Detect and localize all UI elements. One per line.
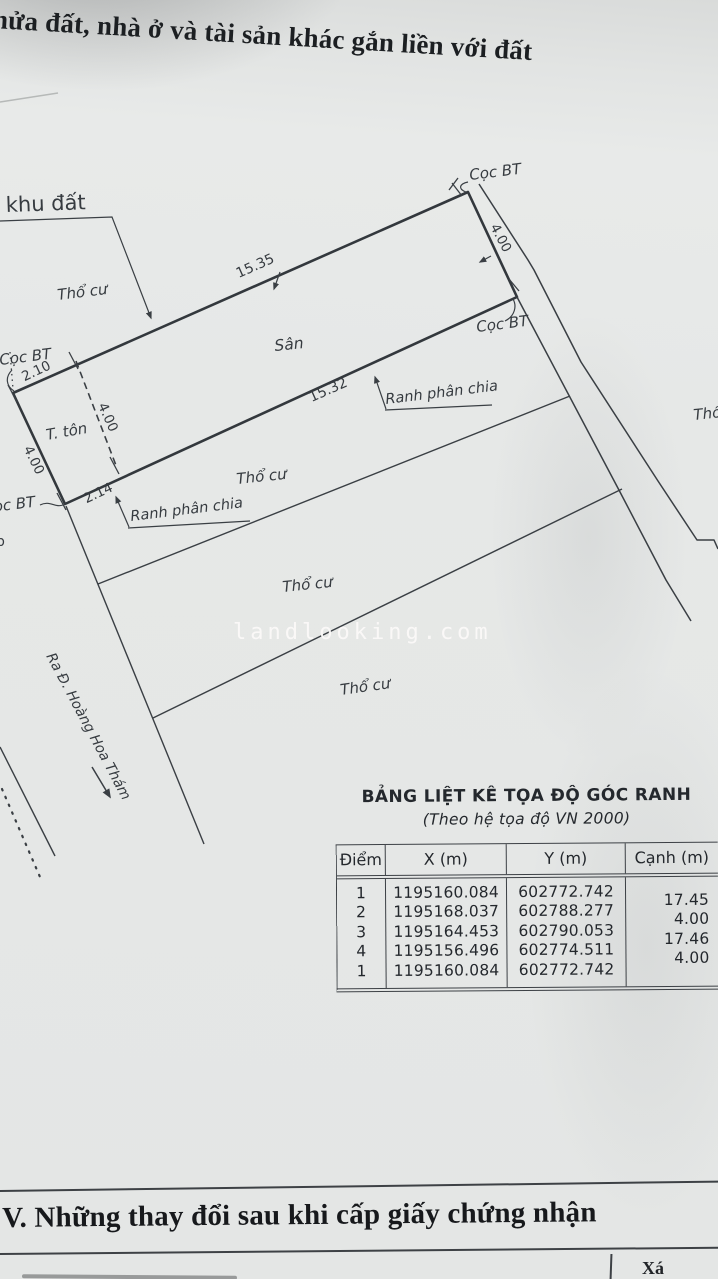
division-boundary-label-1: Ranh phân chia xyxy=(385,378,499,408)
table-header-row: Điểm X (m) Y (m) Cạnh (m) xyxy=(337,843,718,880)
residential-land-label-strip1: Thổ cư xyxy=(236,465,289,488)
footer-section-title: V. Những thay đổi sau khi cấp giấy chứng… xyxy=(2,1195,718,1235)
residential-land-label-strip2: Thổ cư xyxy=(282,573,335,596)
dimension-ticks xyxy=(8,178,519,510)
x-value: 1195164.453 xyxy=(386,922,506,942)
x-value: 1195168.037 xyxy=(386,903,506,923)
street-direction-label: Ra Đ. Hoàng Hoa Thám xyxy=(42,650,133,802)
x-value: 1195160.084 xyxy=(386,883,506,903)
division-label-leader-2 xyxy=(116,497,129,527)
point-value: 4 xyxy=(337,942,385,962)
left-parcel-boundary xyxy=(66,506,204,844)
residential-land-label-right: Thổ cư xyxy=(693,401,718,424)
watermark: landlooking.com xyxy=(233,620,492,645)
partial-letter: b xyxy=(0,534,5,550)
point-value: 2 xyxy=(337,903,385,923)
point-value: 3 xyxy=(337,923,385,943)
column-header-edge: Cạnh (m) xyxy=(625,843,718,874)
dimension-mid-edge: 15.32 xyxy=(307,375,350,406)
edge-length: 17.46 xyxy=(626,929,718,949)
dimension-left-bottom: 2.14 xyxy=(81,480,115,507)
parcel-division-1 xyxy=(98,396,570,584)
road-left-edge xyxy=(517,297,691,621)
marker-leader-left xyxy=(7,370,14,391)
column-header-x: X (m) xyxy=(385,844,506,875)
y-value: 602774.511 xyxy=(507,940,625,960)
y-value: 602788.277 xyxy=(507,902,625,922)
column-header-point: Điểm xyxy=(337,845,385,875)
table-body: 1 2 3 4 1 1195160.084 1195168.037 119516… xyxy=(337,877,718,989)
concrete-marker-label-top: Cọc BT xyxy=(468,160,524,184)
residential-land-label-strip3: Thổ cư xyxy=(339,674,393,699)
area-label-leader xyxy=(0,217,151,318)
point-column: 1 2 3 4 1 xyxy=(337,879,386,988)
y-value: 602772.742 xyxy=(508,960,626,980)
marker-leader-top xyxy=(461,182,468,192)
y-value: 602772.742 xyxy=(507,882,625,902)
plot-boundary xyxy=(13,192,517,504)
edge-length: 4.00 xyxy=(626,949,718,969)
scan-edge-smudge xyxy=(22,1274,237,1279)
metal-shed-label: T. tôn xyxy=(45,419,89,444)
point-value: 1 xyxy=(337,884,385,904)
edge-length: 17.45 xyxy=(626,891,718,911)
residential-land-label: Thổ cư xyxy=(56,280,110,304)
footer-partial-text: Xá xyxy=(642,1258,664,1279)
edge-column: 17.45 4.00 17.46 4.00 xyxy=(625,877,718,987)
dimension-top-edge: 15.35 xyxy=(234,251,277,282)
x-value: 1195160.084 xyxy=(387,961,507,981)
dotted-boundary xyxy=(2,789,40,877)
x-column: 1195160.084 1195168.037 1195164.453 1195… xyxy=(385,878,507,988)
table-subtitle: (Theo hệ tọa độ VN 2000) xyxy=(335,808,717,831)
y-column: 602772.742 602788.277 602790.053 602774.… xyxy=(506,877,626,987)
marker-leader-bottom-left xyxy=(40,503,63,505)
point-value: 1 xyxy=(338,962,386,982)
page-fold-line xyxy=(0,93,58,102)
table-grid: Điểm X (m) Y (m) Cạnh (m) 1 2 3 4 1 1195… xyxy=(336,842,718,993)
area-label: khu đất xyxy=(5,190,86,217)
division-boundary-label-2: Ranh phân chia xyxy=(130,495,244,525)
x-value: 1195156.496 xyxy=(386,941,506,961)
dimension-left-edge: 4.00 xyxy=(20,443,48,477)
edge-length: 4.00 xyxy=(626,910,718,930)
yard-label: Sân xyxy=(274,334,305,355)
column-header-y: Y (m) xyxy=(506,843,625,874)
scanned-certificate-page: hửa đất, nhà ở và tài sản khác gắn liền … xyxy=(0,0,718,1279)
table-title: BẢNG LIỆT KÊ TỌA ĐỘ GÓC RANH xyxy=(335,785,717,809)
drawing-labels: khu đất Thổ cư 15.35 Cọc BT 4.00 Cọc BT … xyxy=(0,160,718,803)
y-value: 602790.053 xyxy=(507,921,625,941)
street-edge-line xyxy=(0,747,55,856)
concrete-marker-label-bottom-left: Cọc BT xyxy=(0,493,38,517)
road-right-edge xyxy=(479,184,718,549)
concrete-marker-label-right: Cọc BT xyxy=(475,312,531,336)
coordinate-table: BẢNG LIỆT KÊ TỌA ĐỘ GÓC RANH (Theo hệ tọ… xyxy=(335,785,718,993)
